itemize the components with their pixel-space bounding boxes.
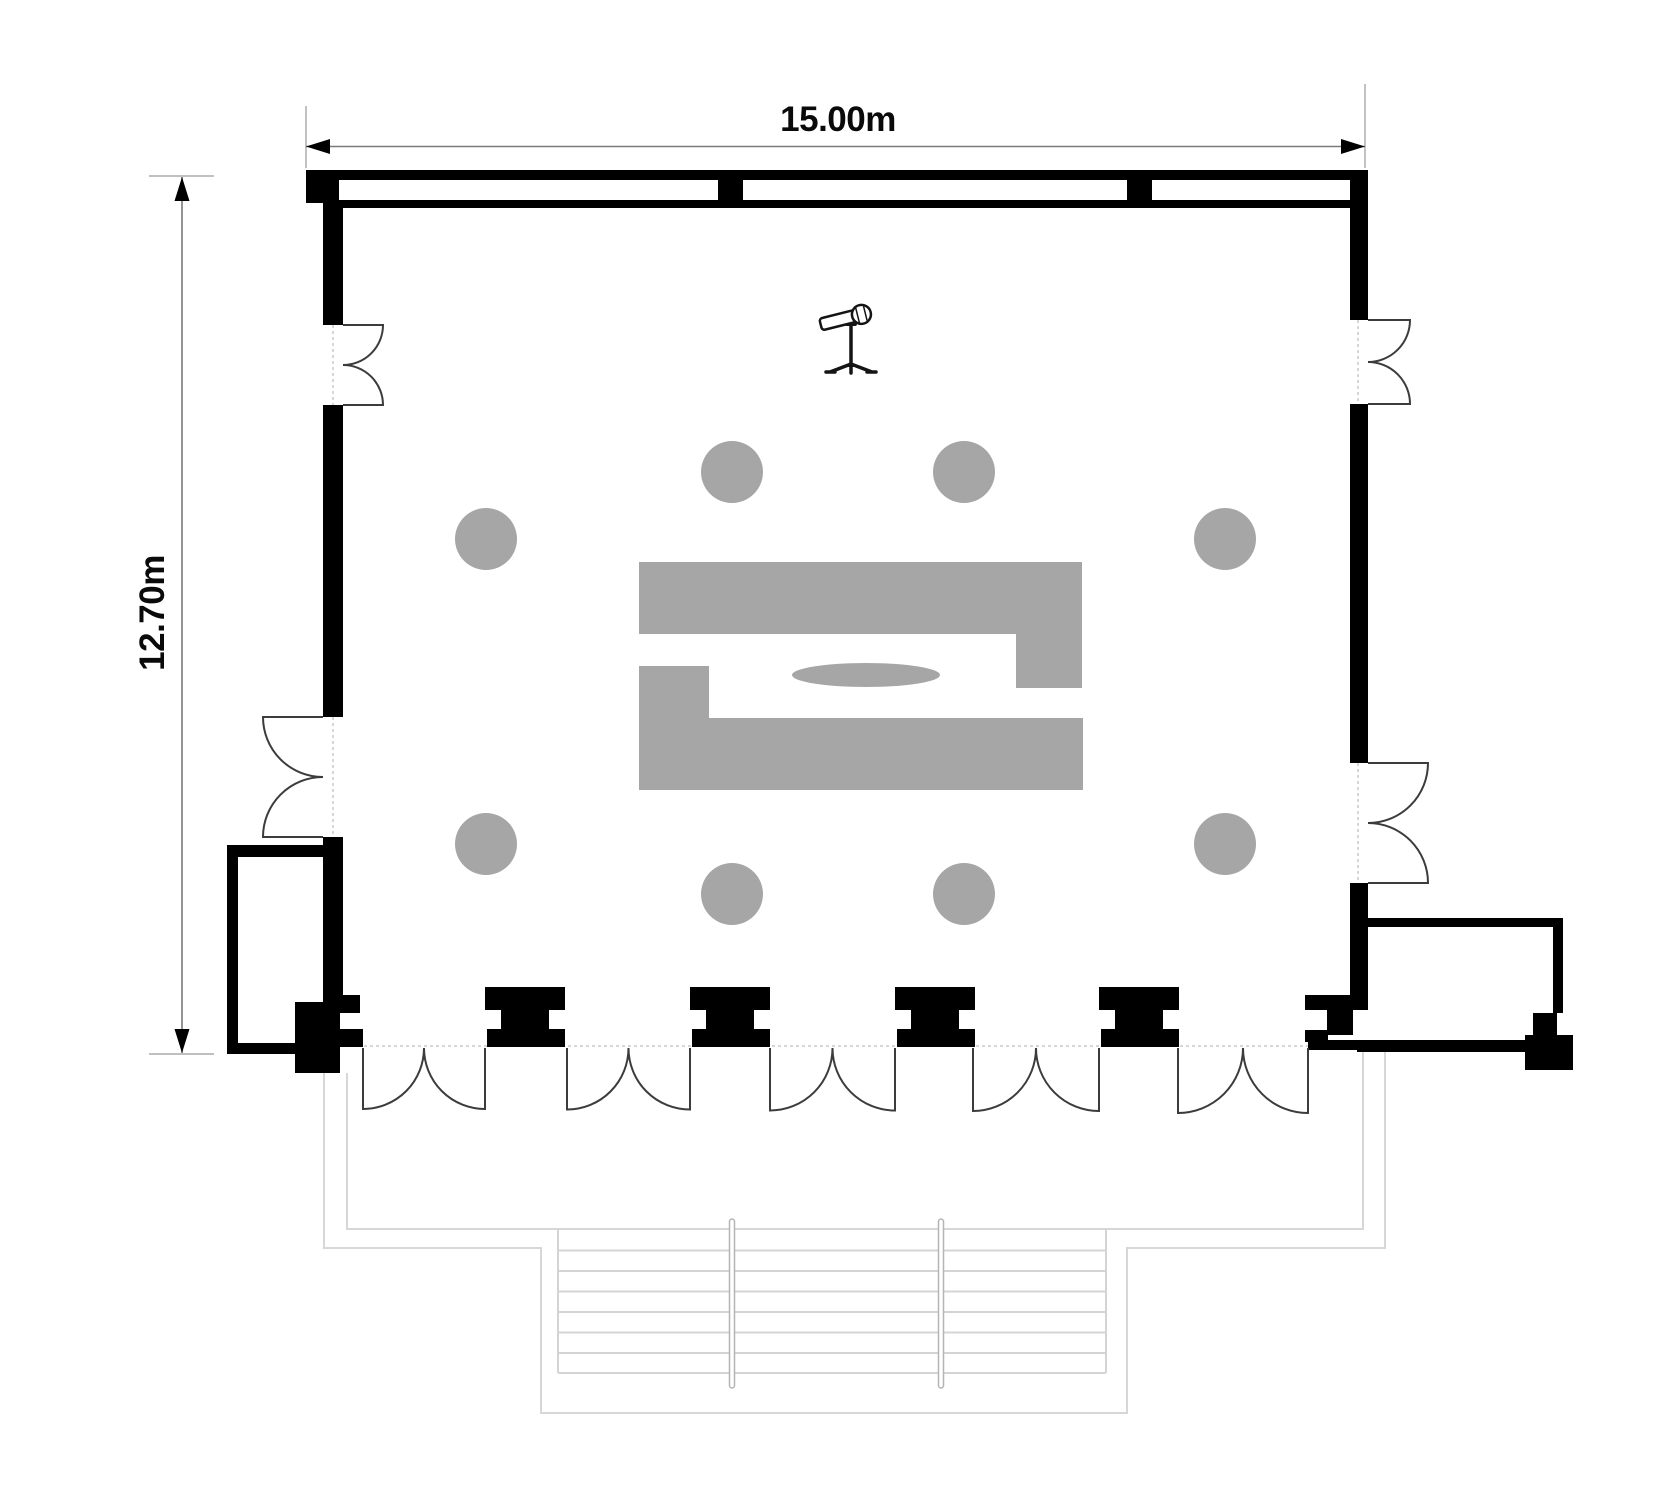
column-pier [1099, 987, 1179, 1047]
door-leaf-swing [1368, 320, 1410, 362]
right-annex-corner-pier [1525, 1035, 1573, 1070]
bottom-right-wall-piece [1308, 1040, 1357, 1050]
right-annex-top-wall [1368, 918, 1563, 927]
floor-plan-page: 15.00m 12.70m [0, 0, 1680, 1504]
left-lower-double-door [263, 717, 323, 837]
terrace-inner-outline [347, 1052, 1363, 1229]
door-leaf-swing [973, 1048, 1036, 1111]
chair-circle [455, 508, 517, 570]
chair-circle [1194, 508, 1256, 570]
door-leaf-swing [343, 325, 383, 365]
conference-table-right-return [1016, 634, 1082, 688]
doors [263, 320, 1428, 1113]
column-bottom-flange [1101, 1029, 1179, 1047]
column-bottom-flange [487, 1029, 565, 1047]
top-left-corner-pier [306, 170, 339, 203]
left-wall-segment [323, 405, 343, 717]
column-top-flange [485, 987, 565, 1010]
microphone-stand-icon [818, 303, 876, 373]
door-leaf-swing [1243, 1048, 1308, 1113]
column-top-flange [690, 987, 770, 1010]
door-leaf-swing [363, 1048, 424, 1109]
stairs [558, 1229, 1106, 1373]
top-wall-outer-band [306, 170, 1368, 180]
terrace-outer-outline [324, 1052, 1385, 1413]
door-leaf-swing [833, 1048, 896, 1111]
mic-tripod-base [826, 364, 876, 373]
door-leaf-swing [1368, 823, 1428, 883]
column-bottom-flange [897, 1029, 975, 1047]
right-annex-right-wall [1553, 918, 1563, 1013]
door-leaf-swing [629, 1048, 691, 1110]
height-dimension-label: 12.70m [133, 555, 172, 671]
chair-circle [933, 863, 995, 925]
door-leaf-swing [1368, 362, 1410, 404]
left-wall-segment [323, 203, 343, 325]
window-mullion [1127, 170, 1152, 208]
door-leaf-swing [1036, 1048, 1099, 1111]
column-pier [485, 987, 565, 1047]
bottom-right-corner-pier [1327, 1010, 1353, 1035]
stair-treads [558, 1251, 1106, 1374]
floor-plan-drawing: 15.00m 12.70m [0, 0, 1680, 1504]
right-wall-segment [1350, 404, 1368, 763]
left-upper-double-door [343, 325, 383, 405]
bottom-entrance-door [567, 1048, 690, 1110]
right-lower-double-door [1368, 763, 1428, 883]
column-pier [690, 987, 770, 1047]
door-leaf-swing [1178, 1048, 1243, 1113]
column-web [501, 1010, 549, 1029]
right-upper-double-door [1368, 320, 1410, 404]
horizontal-dimension: 15.00m [306, 84, 1365, 168]
right-wall-segment [1350, 883, 1368, 1010]
door-leaf-swing [1368, 763, 1428, 823]
bottom-left-corner-pier [295, 1002, 340, 1073]
right-annex-bottom-wall [1357, 1040, 1525, 1052]
column-web [911, 1010, 959, 1029]
center-oval-table [792, 663, 940, 687]
top-wall-inner-band [339, 200, 1350, 208]
bottom-left-wall-stub [340, 995, 360, 1013]
stair-handrail-right [939, 1219, 944, 1388]
window-mullion [718, 170, 743, 208]
chair-circle [701, 441, 763, 503]
bottom-entrance-door [770, 1048, 895, 1111]
door-leaf-swing [343, 365, 383, 405]
furniture [455, 441, 1256, 925]
left-annex-left-wall [227, 845, 238, 1054]
conference-table-bottom-row [639, 718, 1083, 790]
vertical-dimension: 12.70m [133, 176, 214, 1054]
column-bottom-flange [692, 1029, 770, 1047]
bottom-entrance-door [973, 1048, 1099, 1111]
terrace-and-stairs [324, 1052, 1385, 1413]
right-wall-segment [1350, 170, 1368, 320]
width-dimension-label: 15.00m [780, 100, 896, 139]
dimension-arrow-top [175, 177, 190, 201]
dimension-arrow-left [306, 139, 330, 154]
column-web [1115, 1010, 1163, 1029]
right-annex [1357, 918, 1573, 1070]
column-top-flange [1099, 987, 1179, 1010]
bottom-entrance-door [363, 1048, 485, 1109]
left-annex-top-wall [227, 845, 323, 857]
column-top-flange [895, 987, 975, 1010]
door-leaf-swing [424, 1048, 485, 1109]
chair-circle [1194, 813, 1256, 875]
bottom-columns [485, 987, 1179, 1047]
dimension-arrow-bottom [175, 1029, 190, 1053]
chair-circle [455, 813, 517, 875]
left-wall-segment [323, 837, 343, 1002]
dimension-arrow-right [1341, 139, 1365, 154]
bottom-left-wall-stub [340, 1029, 363, 1047]
left-annex-bottom-wall [227, 1043, 297, 1054]
right-annex-wall-tab [1533, 1013, 1557, 1035]
chair-circle [933, 441, 995, 503]
column-web [706, 1010, 754, 1029]
conference-table-top-row [639, 562, 1082, 634]
column-pier [895, 987, 975, 1047]
door-leaf-swing [263, 777, 323, 837]
bottom-right-wall-stub [1305, 995, 1350, 1010]
stair-handrail-left [730, 1219, 735, 1388]
door-leaf-swing [770, 1048, 833, 1111]
bottom-entrance-door [1178, 1048, 1308, 1113]
door-leaf-swing [263, 717, 323, 777]
door-leaf-swing [567, 1048, 629, 1110]
chair-circle [701, 863, 763, 925]
